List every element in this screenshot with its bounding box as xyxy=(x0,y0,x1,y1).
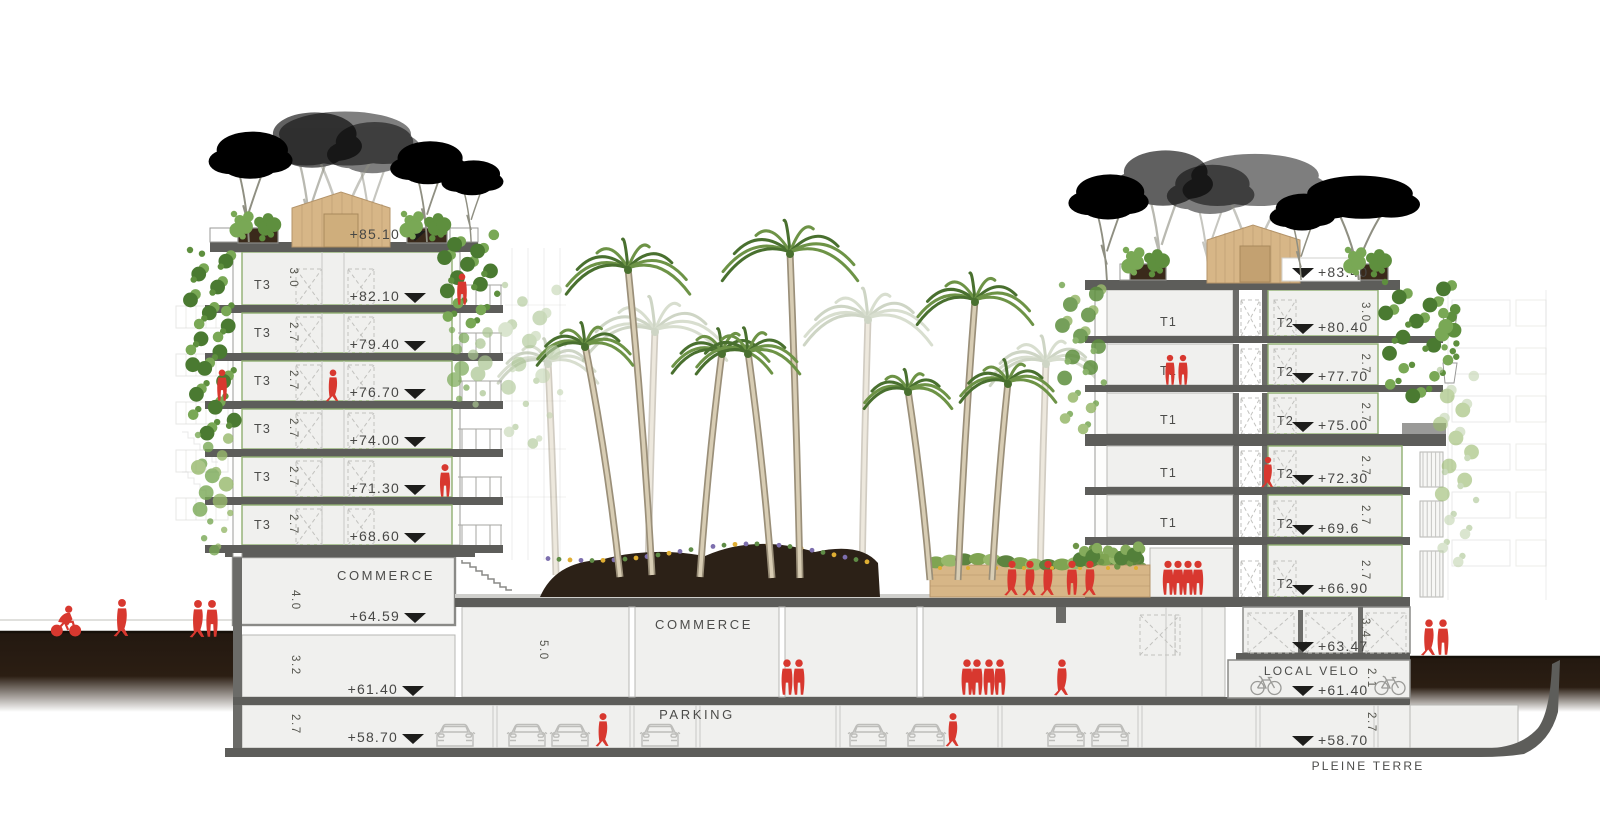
unit-left-label: T1 xyxy=(1160,466,1177,480)
balcony-railing xyxy=(458,429,502,449)
door-outline xyxy=(1241,300,1260,336)
unit-label: T3 xyxy=(254,326,271,340)
person-silhouette xyxy=(1438,619,1449,654)
floor-elevation-text: +80.40 xyxy=(1318,319,1368,335)
right-floor-4: T1T22.7+72.30 xyxy=(1085,446,1443,495)
floor-height: 2.7 xyxy=(287,418,299,439)
floor-elevation-text: +71.30 xyxy=(350,480,400,496)
floor-elevation-text: +74.00 xyxy=(350,432,400,448)
unit-left-label: T1 xyxy=(1160,516,1177,530)
floor-elevation-text: +77.70 xyxy=(1318,368,1368,384)
left-b2-height: 2.7 xyxy=(289,714,301,735)
door-outline xyxy=(1241,451,1260,487)
floor-height: 2.7 xyxy=(287,514,299,535)
palm-tree xyxy=(672,329,772,577)
balcony-railing xyxy=(458,525,502,545)
garage-height: 3.4 xyxy=(1359,618,1371,639)
louver-panel xyxy=(1420,501,1443,537)
floor-elevation-text: +76.70 xyxy=(350,384,400,400)
left-commerce-height: 4.0 xyxy=(289,590,301,611)
person-silhouette xyxy=(114,599,129,636)
floor-elevation-text: +82.10 xyxy=(350,288,400,304)
section-drawing: T33.0+82.10T32.7+79.40T32.7+76.70T32.7+7… xyxy=(0,0,1600,835)
plaza-commerce-box xyxy=(462,607,1225,697)
left-roof-elevation-text: +85.10 xyxy=(350,226,400,242)
unit-right-label: T2 xyxy=(1277,517,1294,531)
floor-elevation-text: +75.00 xyxy=(1318,417,1368,433)
left-b1-height: 3.2 xyxy=(289,655,301,676)
left-commerce-label: COMMERCE xyxy=(337,568,435,583)
plaza-commerce-height: 5.0 xyxy=(537,640,549,661)
unit-right-label: T2 xyxy=(1277,365,1294,379)
floor-elevation-text: +68.60 xyxy=(350,528,400,544)
bike-room-elevation-text: +61.40 xyxy=(1318,682,1368,698)
right-lower-box xyxy=(1410,705,1518,748)
parking-label: PARKING xyxy=(659,707,735,722)
plaza-planting-bed xyxy=(540,541,880,597)
floor-height: 2.7 xyxy=(287,466,299,487)
floor-elevation-text: +69.6 xyxy=(1318,520,1359,536)
unit-label: T3 xyxy=(254,518,271,532)
palm-tree xyxy=(917,273,1033,580)
unit-label: T3 xyxy=(254,470,271,484)
right-lower-height: 2.7 xyxy=(1365,712,1377,733)
right-floor-3: T1T22.7+75.00 xyxy=(1085,393,1446,446)
floor-height: 3.0 xyxy=(287,268,299,289)
bike-room-label: LOCAL VELO xyxy=(1264,664,1360,678)
floor-elevation-text: +79.40 xyxy=(350,336,400,352)
plaza-commerce-label: COMMERCE xyxy=(655,617,753,632)
palm-tree xyxy=(722,220,857,578)
left-b2-elevation-text: +58.70 xyxy=(348,729,398,745)
plaza-stairs xyxy=(462,560,512,590)
section-canvas: T33.0+82.10T32.7+79.40T32.7+76.70T32.7+7… xyxy=(0,0,1600,835)
right-floor-5: T1T22.7+69.6 xyxy=(1085,495,1443,545)
unit-right-label: T2 xyxy=(1277,577,1294,591)
floor-elevation-text: +72.30 xyxy=(1318,470,1368,486)
floor-height: 2.7 xyxy=(1359,505,1371,526)
unit-left-label: T1 xyxy=(1160,413,1177,427)
unit-right-label: T2 xyxy=(1277,316,1294,330)
floor-height: 2.7 xyxy=(287,322,299,343)
unit-right-label: T2 xyxy=(1277,467,1294,481)
louver-panel xyxy=(1420,551,1443,597)
unit-left-label: T1 xyxy=(1160,315,1177,329)
palm-tree xyxy=(566,239,690,575)
unit-label: T3 xyxy=(254,374,271,388)
palm-tree xyxy=(864,369,952,580)
balcony-railing xyxy=(458,477,502,497)
garage-elevation-text: +63.47 xyxy=(1318,638,1368,654)
soil-left xyxy=(0,632,237,712)
unit-right-label: T2 xyxy=(1277,414,1294,428)
door-outline xyxy=(1241,501,1260,537)
floor-elevation-text: +66.90 xyxy=(1318,580,1368,596)
left-commerce-elevation-text: +64.59 xyxy=(350,608,400,624)
unit-label: T3 xyxy=(254,422,271,436)
right-lower-elevation-text: +58.70 xyxy=(1318,732,1368,748)
person-silhouette xyxy=(1421,619,1435,655)
garage-floor-slab xyxy=(1236,653,1410,660)
balcony-railing xyxy=(458,381,502,401)
unit-label: T3 xyxy=(254,278,271,292)
louver-panel xyxy=(1420,452,1443,487)
door-outline xyxy=(1241,349,1260,385)
soil-right xyxy=(1408,657,1600,712)
left-commerce-wall xyxy=(233,557,242,757)
left-b1-elevation-text: +61.40 xyxy=(348,681,398,697)
pleine-terre-label: PLEINE TERRE xyxy=(1312,759,1425,773)
door-outline xyxy=(1241,398,1260,434)
door-outline xyxy=(1241,561,1260,597)
floor-height: 2.7 xyxy=(1359,560,1371,581)
floor-height: 2.7 xyxy=(287,370,299,391)
